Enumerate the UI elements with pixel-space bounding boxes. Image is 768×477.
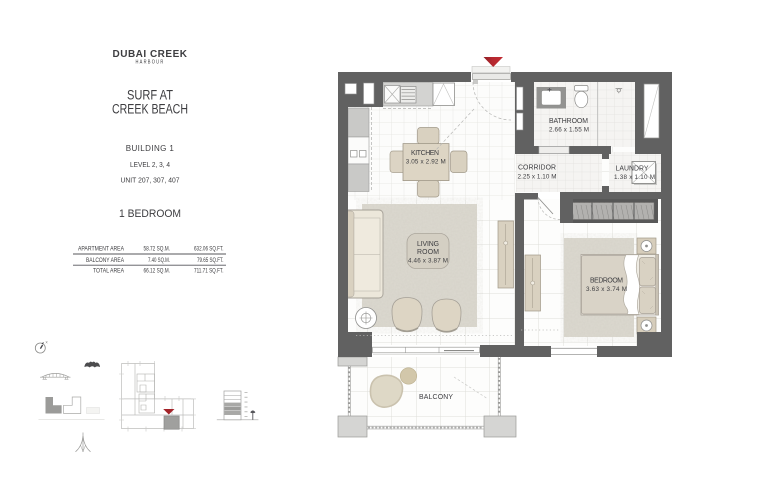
svg-text:HARBOUR: HARBOUR [136, 60, 165, 66]
svg-text:58.72 SQ.M.: 58.72 SQ.M. [144, 247, 171, 253]
svg-text:2.66 x 1.55 M: 2.66 x 1.55 M [549, 127, 589, 134]
svg-text:SURF AT: SURF AT [127, 88, 173, 103]
svg-text:CORRIDOR: CORRIDOR [518, 165, 556, 172]
svg-text:2.25 x 1.10 M: 2.25 x 1.10 M [518, 174, 557, 181]
svg-text:LAUNDRY: LAUNDRY [616, 166, 649, 173]
svg-text:TOTAL AREA: TOTAL AREA [93, 269, 124, 275]
svg-text:LEVEL 2, 3, 4: LEVEL 2, 3, 4 [130, 162, 170, 169]
svg-text:1 BEDROOM: 1 BEDROOM [119, 208, 181, 220]
svg-text:66.12 SQ.M.: 66.12 SQ.M. [144, 269, 171, 275]
svg-text:4.46 x 3.87 M: 4.46 x 3.87 M [408, 257, 448, 264]
svg-text:UNIT 207, 307, 407: UNIT 207, 307, 407 [121, 178, 180, 185]
svg-text:ROOM: ROOM [417, 249, 439, 256]
svg-text:LIVING: LIVING [417, 241, 439, 248]
svg-text:BALCONY: BALCONY [419, 394, 453, 401]
svg-text:BALCONY AREA: BALCONY AREA [86, 258, 124, 264]
svg-text:632.06 SQ.FT.: 632.06 SQ.FT. [194, 247, 224, 253]
svg-text:3.05 x 2.92 M: 3.05 x 2.92 M [406, 159, 446, 166]
svg-text:1.38 x 1.10 M: 1.38 x 1.10 M [614, 174, 655, 181]
svg-text:BUILDING 1: BUILDING 1 [126, 144, 175, 153]
svg-text:79.65 SQ.FT.: 79.65 SQ.FT. [197, 258, 224, 264]
svg-text:3.63 x 3.74 M: 3.63 x 3.74 M [586, 286, 627, 293]
svg-text:KITCHEN: KITCHEN [411, 150, 439, 157]
svg-text:711.71 SQ.FT.: 711.71 SQ.FT. [194, 269, 224, 275]
svg-text:7.40 SQ.M.: 7.40 SQ.M. [148, 258, 170, 264]
svg-text:BEDROOM: BEDROOM [590, 278, 623, 285]
svg-text:BATHROOM: BATHROOM [549, 118, 588, 125]
svg-text:APARTMENT AREA: APARTMENT AREA [78, 247, 124, 253]
svg-text:CREEK BEACH: CREEK BEACH [112, 102, 188, 117]
svg-text:DUBAI CREEK: DUBAI CREEK [113, 49, 188, 60]
